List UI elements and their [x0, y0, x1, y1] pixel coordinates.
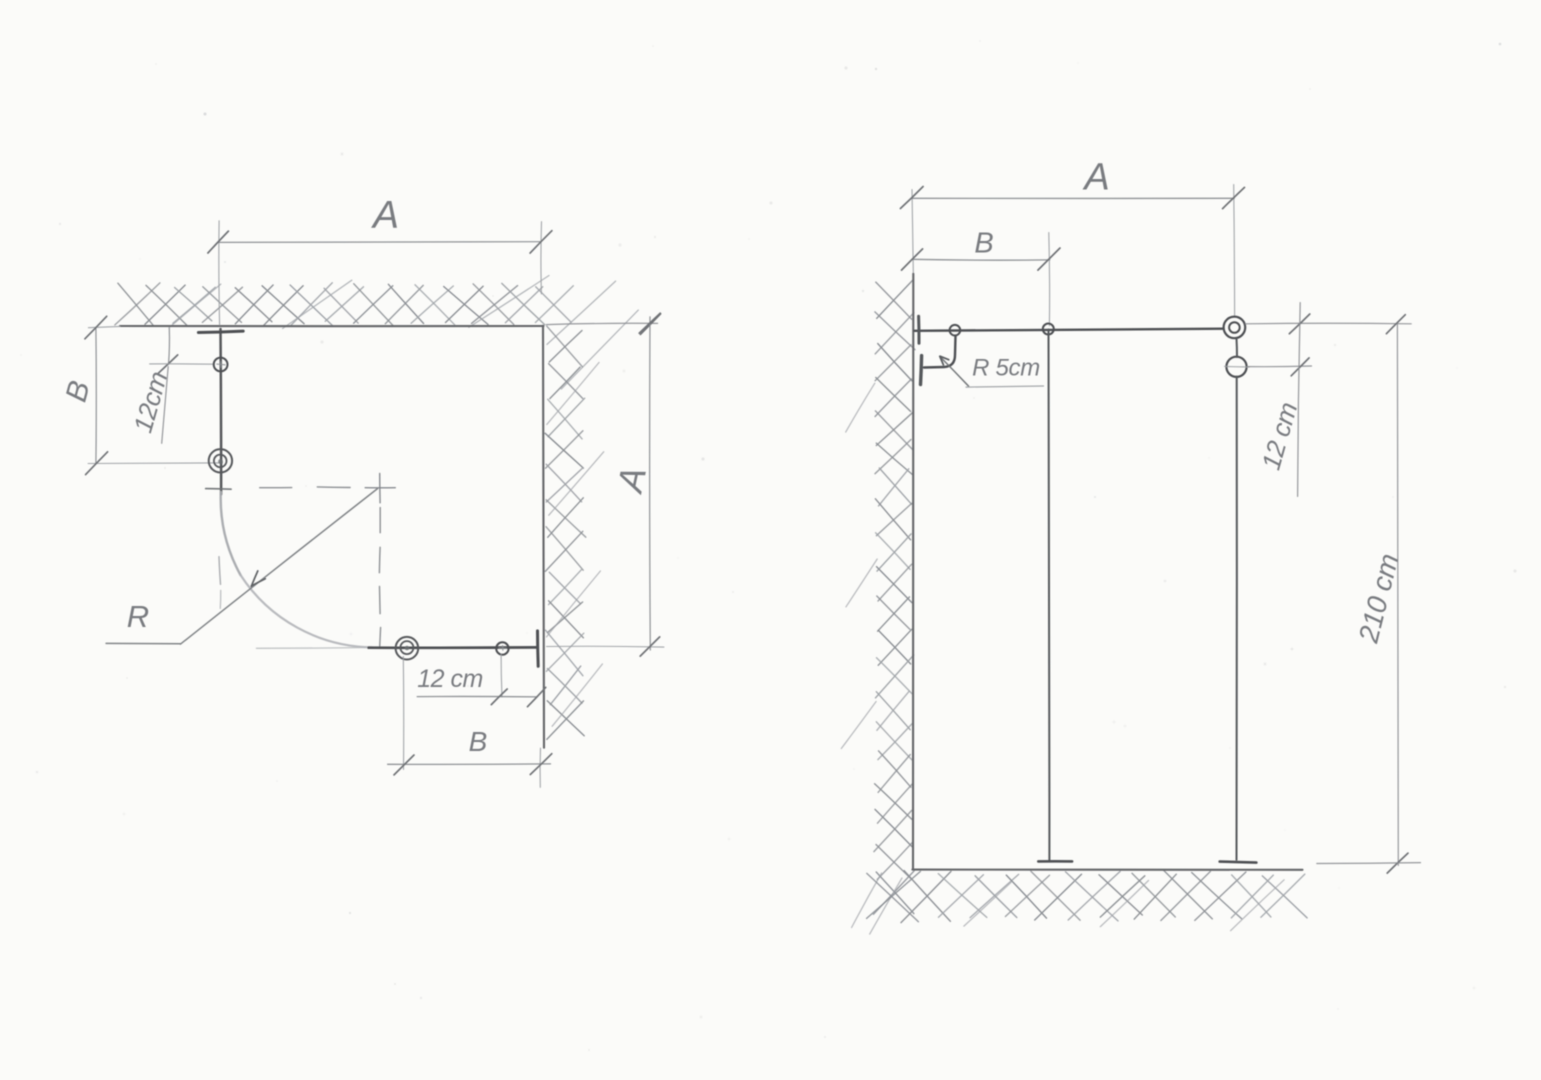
- svg-text:A: A: [1082, 157, 1109, 199]
- svg-text:12 cm: 12 cm: [417, 665, 483, 693]
- svg-text:B: B: [974, 227, 993, 259]
- svg-text:B: B: [469, 726, 488, 757]
- svg-text:R 5cm: R 5cm: [972, 355, 1040, 382]
- svg-text:R: R: [127, 599, 149, 634]
- svg-text:A: A: [371, 194, 399, 237]
